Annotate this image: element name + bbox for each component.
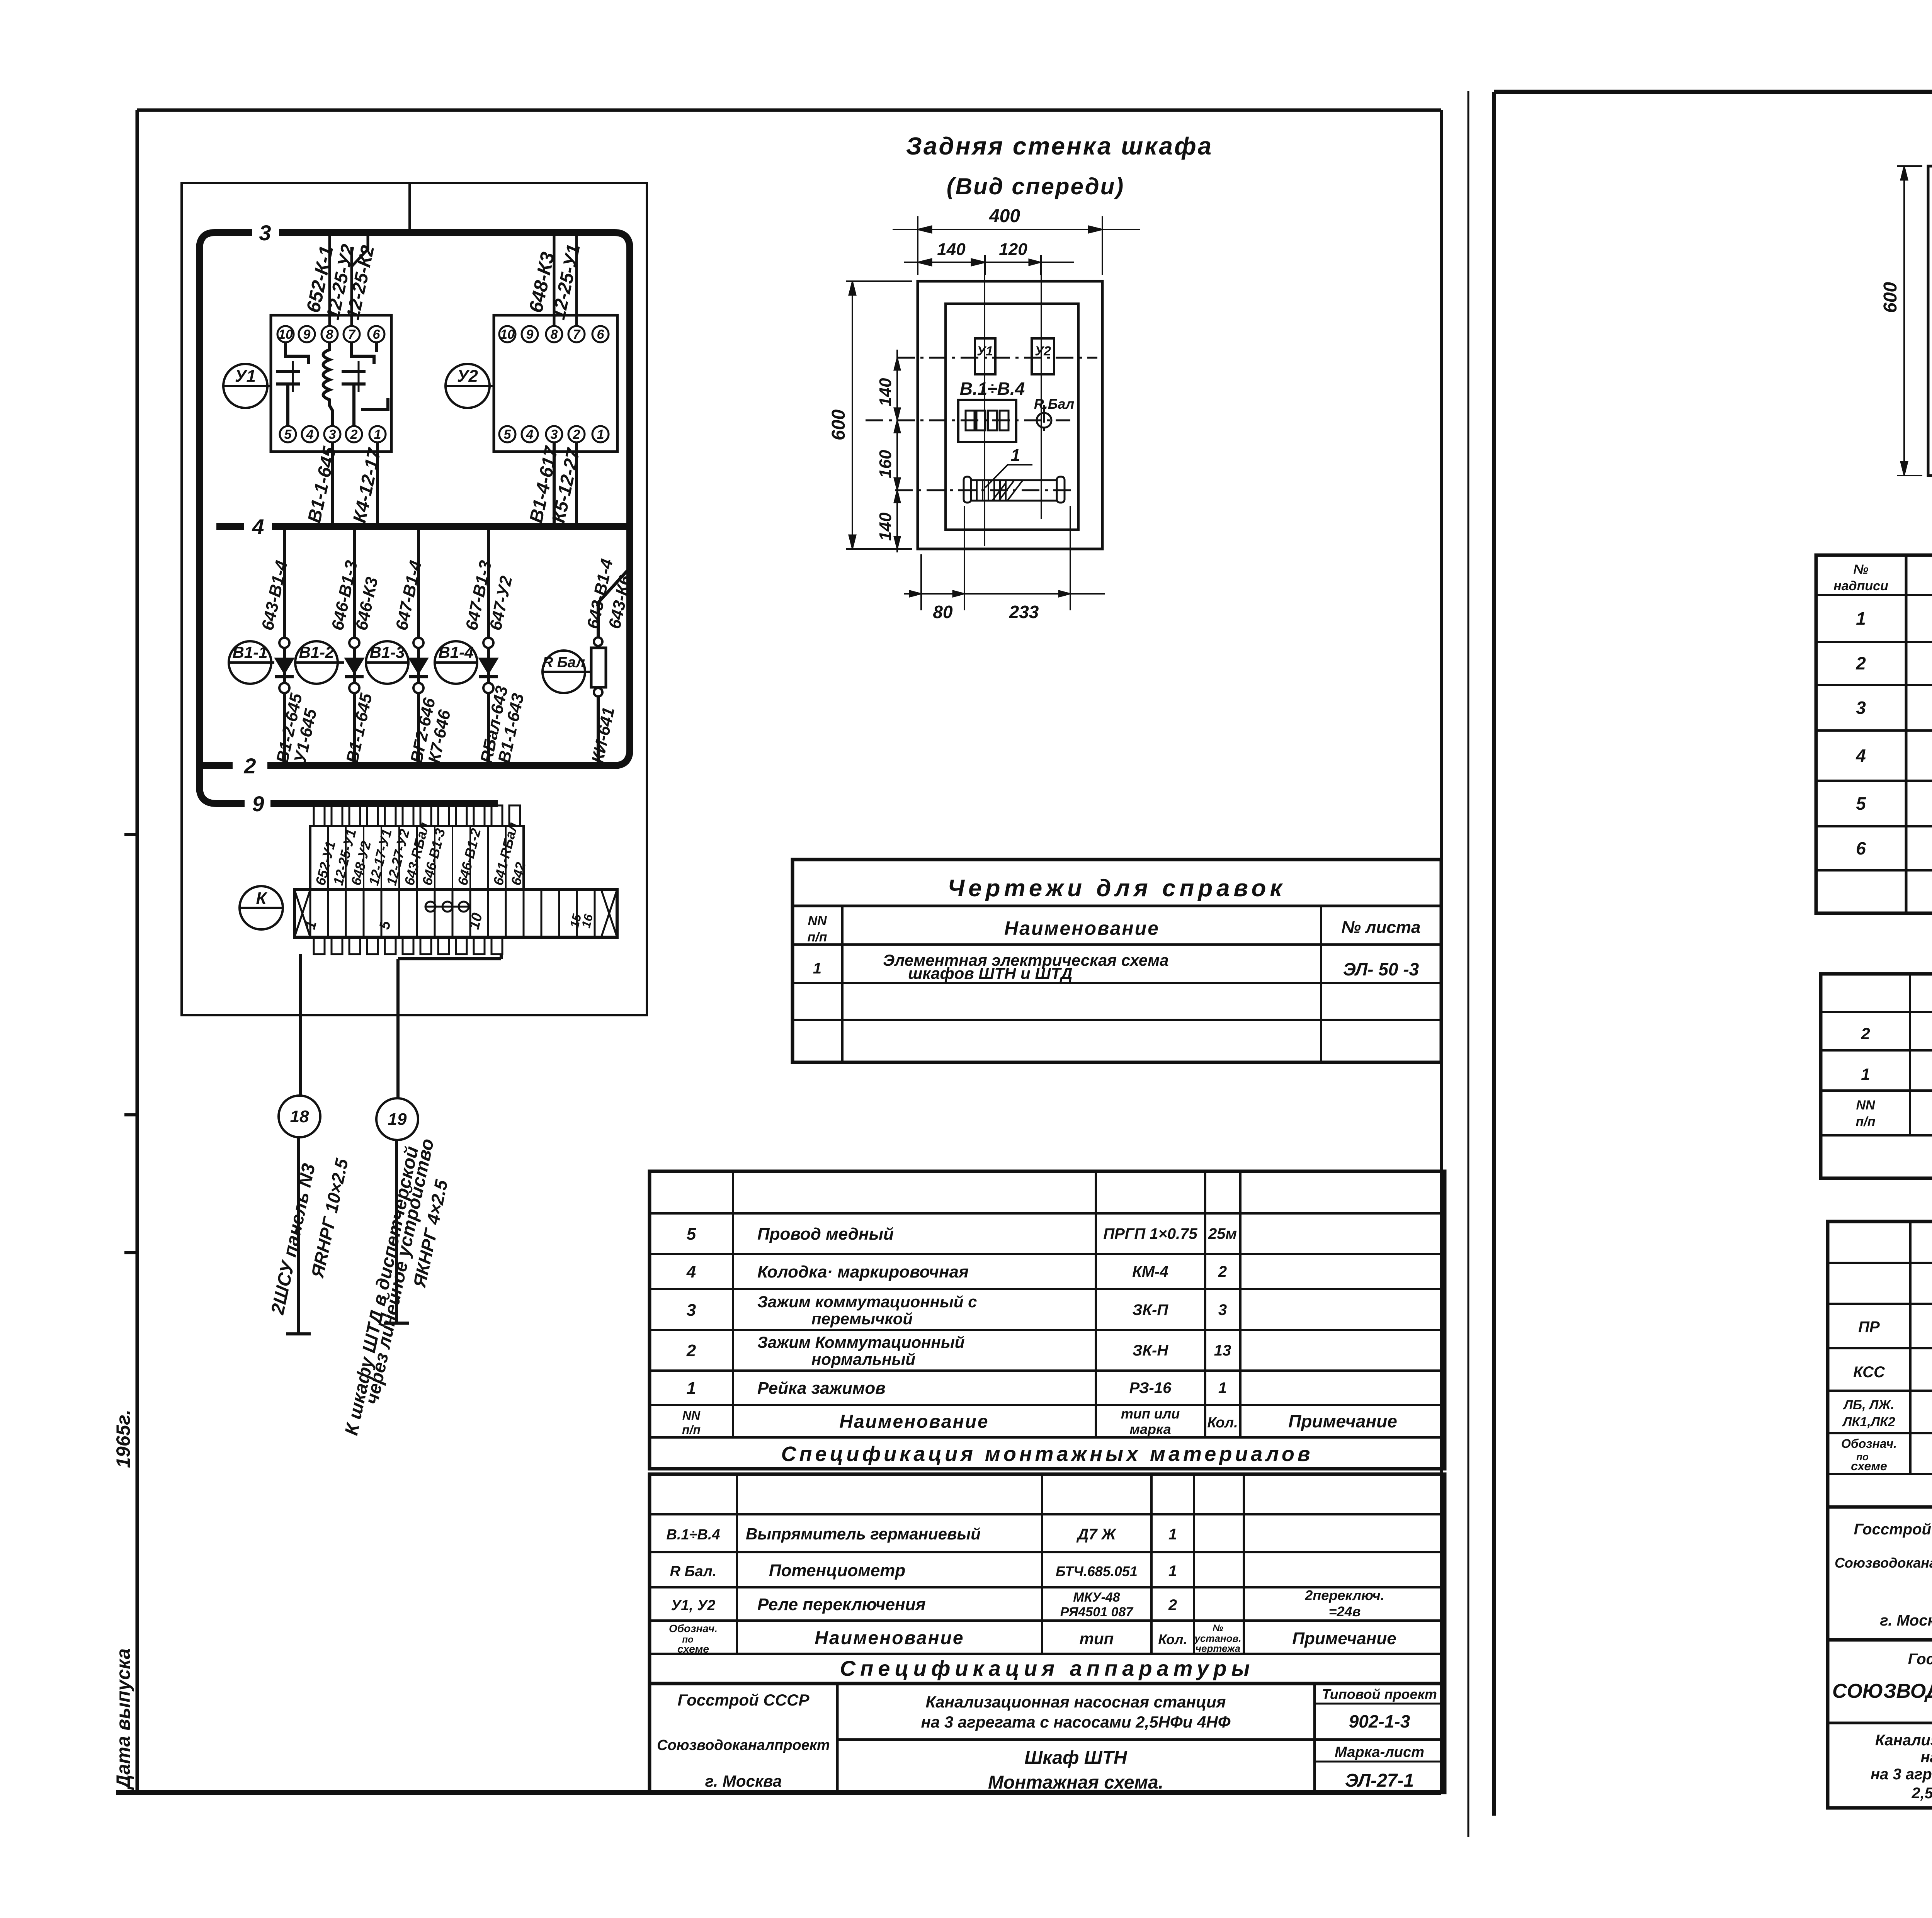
svg-text:СОЮЗВОДОКАНАЛПРОЕКТ: СОЮЗВОДОКАНАЛПРОЕКТ (1832, 1680, 1932, 1702)
svg-text:Дата выпуска: Дата выпуска (112, 1648, 134, 1790)
svg-text:Выпрямитель германиевый: Выпрямитель германиевый (746, 1525, 981, 1543)
svg-text:1: 1 (1218, 1379, 1227, 1396)
svg-text:2: 2 (1861, 1024, 1870, 1043)
svg-text:2переключ.: 2переключ. (1304, 1587, 1384, 1603)
svg-text:600: 600 (828, 409, 849, 440)
svg-text:Наименование: Наименование (839, 1412, 989, 1432)
svg-text:Наименование: Наименование (815, 1628, 964, 1648)
svg-text:ЛБ, ЛЖ.: ЛБ, ЛЖ. (1843, 1398, 1895, 1412)
svg-text:№: № (1213, 1623, 1223, 1633)
svg-text:Провод медный: Провод медный (757, 1225, 894, 1244)
svg-text:тип или: тип или (1121, 1406, 1180, 1422)
svg-text:2: 2 (573, 427, 580, 442)
svg-text:БТЧ.685.051: БТЧ.685.051 (1056, 1563, 1138, 1579)
svg-text:марка: марка (1129, 1421, 1171, 1437)
svg-text:Чертежи для справок: Чертежи для справок (947, 875, 1286, 902)
svg-text:Д7 Ж: Д7 Ж (1076, 1526, 1116, 1543)
svg-text:2: 2 (1218, 1263, 1227, 1280)
svg-text:В1-2: В1-2 (299, 643, 334, 661)
svg-text:600: 600 (1880, 282, 1901, 313)
svg-text:902-1-3: 902-1-3 (1349, 1711, 1410, 1731)
svg-text:В1-3: В1-3 (369, 643, 405, 661)
svg-text:КМ-4: КМ-4 (1132, 1263, 1168, 1280)
svg-text:п/п: п/п (682, 1423, 701, 1437)
svg-text:Зажим коммутационный с: Зажим коммутационный с (757, 1293, 977, 1311)
svg-text:25м: 25м (1208, 1225, 1237, 1242)
svg-text:5: 5 (504, 427, 512, 442)
svg-text:3: 3 (259, 221, 271, 245)
svg-text:ПРГП 1×0.75: ПРГП 1×0.75 (1103, 1225, 1197, 1242)
svg-text:Канализационная насосная ста: Канализационная насосная станция (925, 1693, 1226, 1711)
svg-text:Реле переключения: Реле переключения (757, 1595, 926, 1614)
svg-text:2: 2 (1168, 1597, 1177, 1614)
svg-text:18: 18 (290, 1107, 309, 1126)
svg-text:Примечание: Примечание (1288, 1411, 1397, 1431)
svg-text:У1: У1 (235, 367, 256, 386)
svg-text:надписи: надписи (1833, 579, 1888, 593)
svg-text:схеме: схеме (677, 1643, 709, 1655)
svg-text:8: 8 (326, 327, 333, 342)
svg-text:ЗК-Н: ЗК-Н (1133, 1342, 1169, 1359)
svg-text:(Вид спереди): (Вид спереди) (947, 173, 1125, 199)
svg-text:шкафов ШТН и ШТД: шкафов ШТН и ШТД (908, 964, 1073, 982)
svg-text:МКУ-48: МКУ-48 (1073, 1590, 1120, 1605)
svg-text:Госстрой СССР: Госстрой СССР (1854, 1521, 1932, 1538)
svg-text:2: 2 (243, 754, 256, 778)
svg-text:на 3 агрегата с насосами: на 3 агрегата с насосами (1871, 1766, 1932, 1783)
svg-text:4: 4 (1855, 746, 1866, 766)
svg-text:Обознач.: Обознач. (1841, 1437, 1897, 1451)
svg-text:4: 4 (686, 1262, 696, 1281)
svg-text:2,5 НФ или 4НФ: 2,5 НФ или 4НФ (1911, 1785, 1932, 1802)
svg-text:КСС: КСС (1853, 1364, 1885, 1381)
svg-text:ная станция: ная станция (1920, 1749, 1932, 1766)
svg-text:перемычкой: перемычкой (811, 1310, 913, 1328)
svg-text:ЗК-П: ЗК-П (1133, 1301, 1169, 1318)
svg-text:ЛК1,ЛК2: ЛК1,ЛК2 (1842, 1415, 1895, 1429)
svg-text:ЭЛ-27-1: ЭЛ-27-1 (1345, 1770, 1414, 1791)
svg-text:2: 2 (350, 427, 358, 442)
svg-text:Союзводоканалпроект: Союзводоканалпроект (657, 1737, 830, 1753)
svg-text:Рейка зажимов: Рейка зажимов (757, 1379, 886, 1398)
svg-text:Потенциометр: Потенциометр (769, 1561, 905, 1580)
svg-text:1: 1 (1861, 1065, 1870, 1083)
svg-text:К: К (256, 889, 267, 908)
svg-text:Спецификация монтажных ма: Спецификация монтажных материалов (781, 1442, 1313, 1466)
svg-text:R Бал.: R Бал. (670, 1563, 717, 1580)
svg-text:9: 9 (252, 792, 264, 816)
svg-text:Кол.: Кол. (1158, 1631, 1187, 1647)
svg-text:ПР: ПР (1858, 1318, 1880, 1335)
svg-text:п/п: п/п (808, 930, 827, 945)
svg-text:Колодка· маркировочная: Колодка· маркировочная (757, 1262, 969, 1281)
svg-text:R.Бал: R.Бал (1034, 396, 1074, 412)
svg-text:Кол.: Кол. (1207, 1415, 1238, 1431)
svg-text:4: 4 (306, 427, 314, 442)
svg-text:У1, У2: У1, У2 (671, 1597, 716, 1614)
svg-text:нормальный: нормальный (811, 1350, 915, 1368)
svg-text:80: 80 (933, 602, 953, 622)
svg-text:10: 10 (500, 327, 515, 342)
svg-text:4: 4 (526, 427, 534, 442)
svg-text:Шкаф ШТН: Шкаф ШТН (1024, 1748, 1128, 1768)
svg-text:В.1÷В.4: В.1÷В.4 (960, 379, 1025, 399)
svg-text:120: 120 (999, 240, 1027, 259)
svg-text:3: 3 (1218, 1301, 1227, 1318)
svg-text:У2: У2 (457, 367, 478, 386)
svg-text:5: 5 (1856, 793, 1866, 814)
svg-text:В.1÷В.4: В.1÷В.4 (666, 1527, 720, 1543)
svg-text:п/п: п/п (1856, 1114, 1876, 1129)
svg-text:4: 4 (252, 515, 264, 539)
svg-text:NN: NN (1856, 1098, 1876, 1113)
svg-text:140: 140 (876, 512, 895, 541)
svg-text:10: 10 (278, 327, 293, 342)
svg-text:Спецификация аппаратуры: Спецификация аппаратуры (840, 1656, 1255, 1680)
svg-text:У2: У2 (1035, 344, 1051, 358)
svg-text:7: 7 (573, 327, 581, 342)
svg-text:6: 6 (373, 327, 381, 342)
svg-text:160: 160 (876, 450, 895, 478)
svg-text:№: № (1854, 562, 1869, 577)
svg-text:Обознач.: Обознач. (669, 1622, 718, 1634)
svg-text:г. Москва: г. Москва (1880, 1612, 1932, 1629)
svg-text:РЗ-16: РЗ-16 (1129, 1379, 1172, 1396)
svg-text:19: 19 (388, 1110, 407, 1129)
svg-text:на 3 агрегата с насосами: на 3 агрегата с насосами 2,5НФи 4НФ (921, 1713, 1231, 1731)
svg-text:Зажим Коммутационный: Зажим Коммутационный (757, 1333, 964, 1351)
svg-text:1: 1 (1011, 446, 1020, 465)
svg-text:R Бал: R Бал (543, 654, 585, 671)
svg-text:1: 1 (1168, 1563, 1177, 1580)
svg-text:233: 233 (1009, 602, 1039, 622)
svg-text:Госстрой СССР: Госстрой СССР (677, 1691, 810, 1709)
svg-text:2: 2 (1855, 653, 1866, 673)
svg-text:Примечание: Примечание (1292, 1629, 1396, 1648)
svg-text:8: 8 (551, 327, 558, 342)
svg-text:NN: NN (808, 914, 827, 928)
svg-text:6: 6 (597, 327, 605, 342)
svg-text:3: 3 (551, 427, 558, 442)
svg-text:1: 1 (1856, 608, 1866, 629)
svg-text:9: 9 (303, 327, 311, 342)
svg-text:5: 5 (687, 1225, 696, 1244)
svg-text:400: 400 (989, 206, 1020, 226)
svg-text:2: 2 (686, 1341, 696, 1360)
svg-text:13: 13 (1214, 1342, 1231, 1359)
svg-text:чертежа: чертежа (1196, 1643, 1240, 1654)
svg-text:В1-4: В1-4 (438, 643, 473, 661)
svg-text:Союзводоканалпроект: Союзводоканалпроект (1835, 1555, 1932, 1571)
svg-text:1: 1 (687, 1379, 696, 1398)
svg-text:1965г.: 1965г. (112, 1410, 134, 1468)
svg-text:3: 3 (1856, 698, 1866, 718)
svg-text:Монтажная схема.: Монтажная схема. (988, 1772, 1163, 1793)
svg-text:1: 1 (374, 427, 381, 442)
svg-text:Госстрой СССР: Госстрой СССР (1908, 1651, 1932, 1668)
svg-text:1: 1 (813, 960, 821, 977)
svg-text:РЯ4501 087: РЯ4501 087 (1060, 1605, 1134, 1619)
svg-text:7: 7 (348, 327, 356, 342)
svg-text:В1-1: В1-1 (232, 643, 267, 661)
svg-text:3: 3 (329, 427, 336, 442)
svg-text:1: 1 (597, 427, 604, 442)
svg-text:140: 140 (876, 378, 895, 406)
svg-text:3: 3 (687, 1301, 696, 1320)
svg-text:тип: тип (1080, 1629, 1114, 1648)
svg-text:5: 5 (284, 427, 292, 442)
svg-text:схеме: схеме (1851, 1459, 1887, 1473)
svg-text:Типовой проект: Типовой проект (1322, 1686, 1437, 1702)
svg-text:9: 9 (526, 327, 534, 342)
svg-text:=24в: =24в (1329, 1604, 1361, 1619)
svg-text:140: 140 (937, 240, 966, 259)
svg-text:№ листа: № листа (1342, 918, 1421, 937)
svg-text:ЭЛ- 50 -3: ЭЛ- 50 -3 (1343, 959, 1419, 979)
svg-text:Наименование: Наименование (1004, 917, 1160, 939)
svg-text:NN: NN (682, 1408, 701, 1422)
svg-text:1: 1 (1168, 1526, 1177, 1543)
svg-text:Канализационная насос-: Канализационная насос- (1875, 1732, 1932, 1749)
svg-text:Марка-лист: Марка-лист (1335, 1744, 1424, 1760)
svg-text:6: 6 (1856, 838, 1866, 858)
svg-text:г. Москва: г. Москва (705, 1772, 782, 1790)
svg-text:Задняя стенка шкафа: Задняя стенка шкафа (906, 132, 1213, 160)
